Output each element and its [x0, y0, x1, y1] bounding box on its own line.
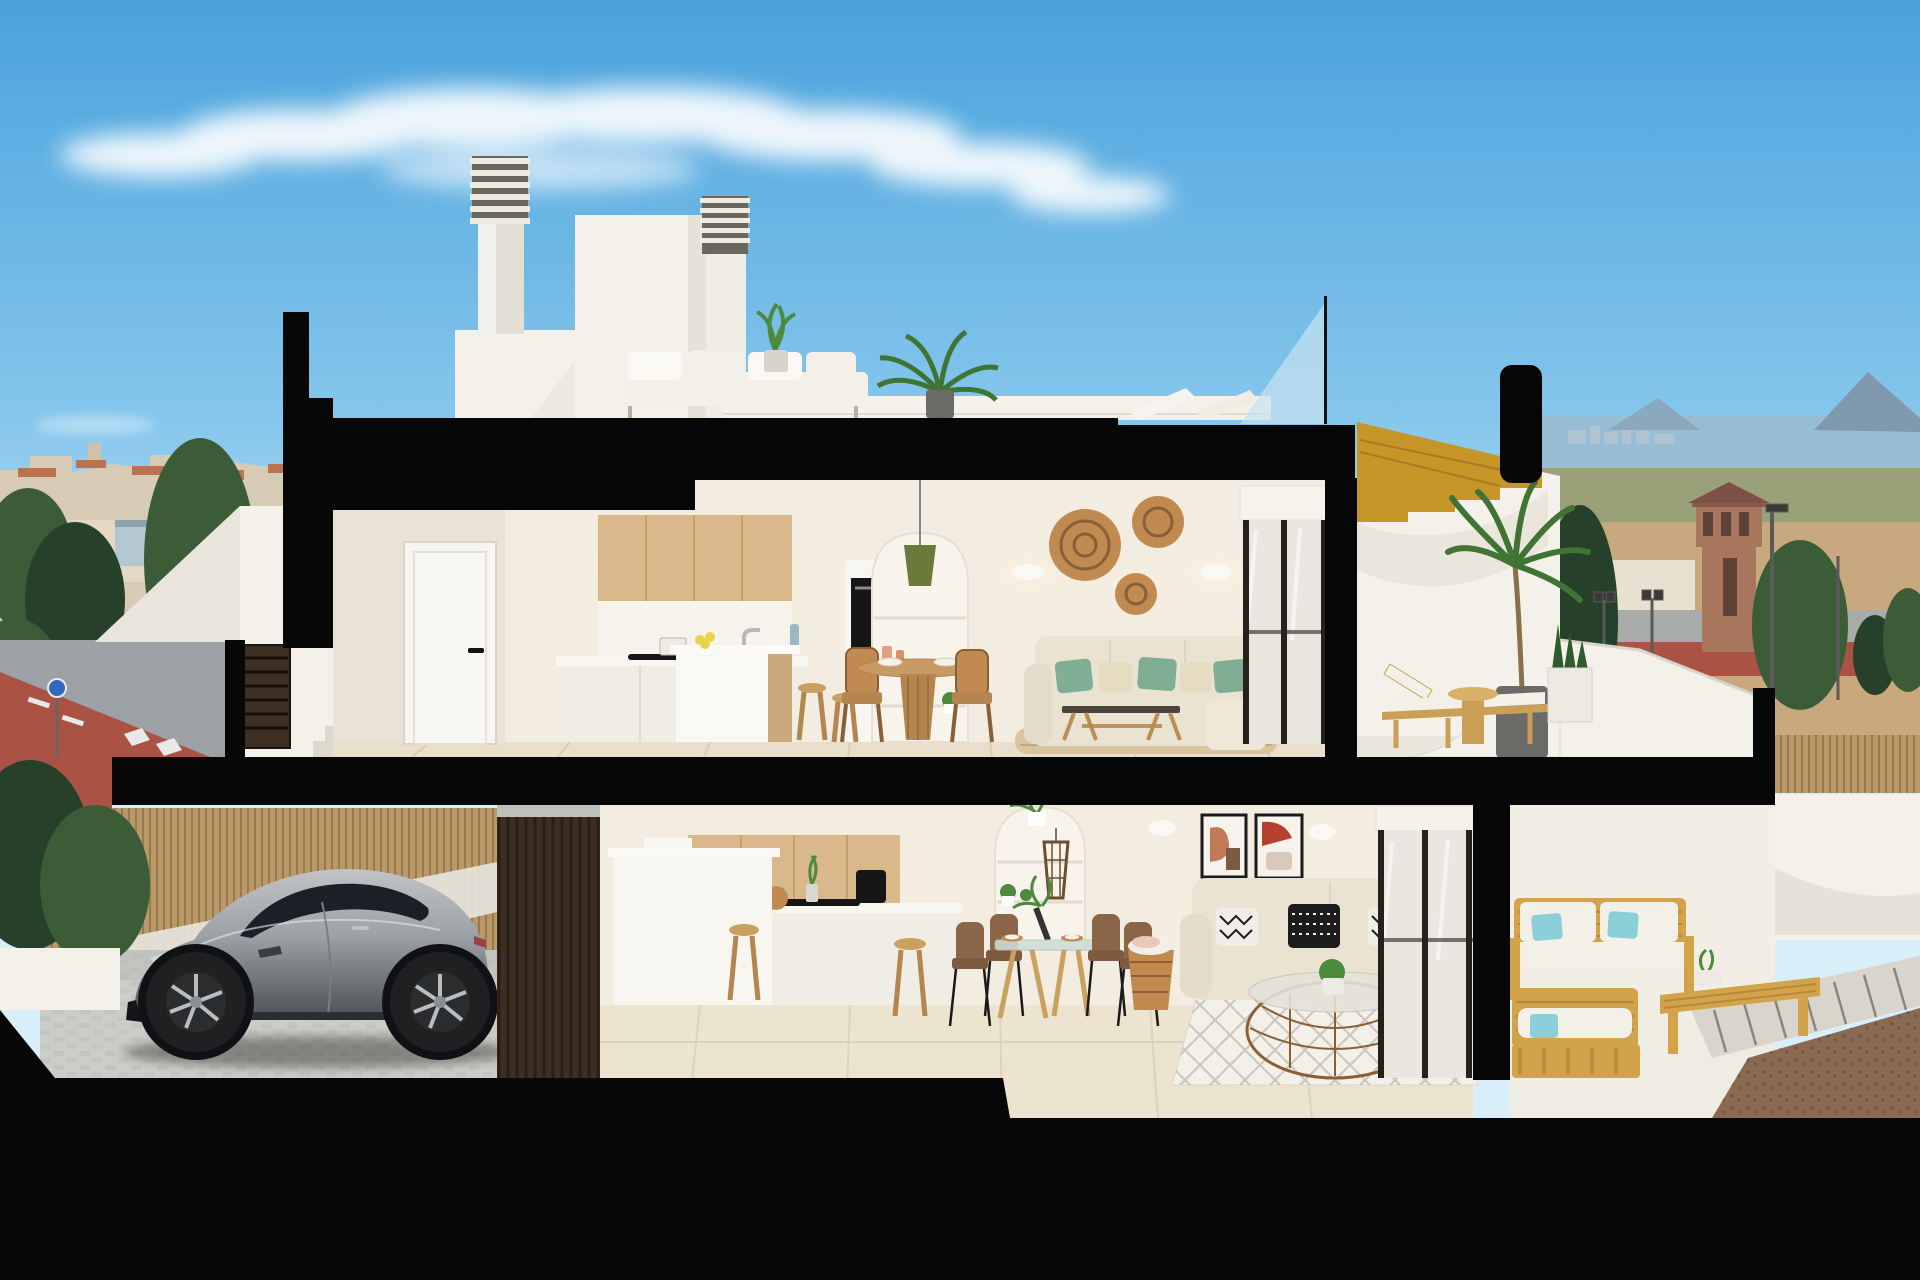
vase — [806, 884, 818, 902]
chair-back — [956, 922, 984, 964]
lamp-head — [1654, 590, 1663, 600]
door-frame-bar — [1378, 830, 1384, 1078]
louver-core — [702, 196, 748, 254]
sofa-base — [1512, 1044, 1640, 1078]
bw-pillow — [1216, 908, 1258, 946]
slat — [470, 170, 530, 176]
palm-pot — [926, 390, 954, 418]
niche-plant — [1020, 889, 1032, 901]
slat — [470, 194, 530, 200]
louver-core — [472, 156, 528, 224]
hub — [190, 996, 202, 1008]
sconce — [1148, 820, 1176, 836]
traffic-sign — [48, 679, 66, 697]
under-cabinet-light — [598, 601, 792, 605]
sconce — [1012, 564, 1044, 580]
skyline-building — [1604, 432, 1618, 444]
slat — [470, 206, 530, 212]
door-rail — [1378, 938, 1474, 942]
skyline-building — [1568, 430, 1586, 444]
cross-section-illustration — [0, 0, 1920, 1280]
table-pedestal — [1462, 696, 1484, 744]
skyline-building — [1654, 434, 1674, 444]
slat — [470, 158, 530, 164]
slat — [470, 218, 530, 224]
cut-entry-edge — [225, 640, 245, 757]
slat — [700, 228, 750, 233]
basket — [1128, 950, 1174, 1010]
louvered-gate — [243, 645, 290, 748]
seat-cushion — [1512, 942, 1690, 964]
small-cloud — [35, 415, 155, 435]
rear-wheel — [390, 952, 490, 1052]
skyline-building — [1636, 431, 1649, 444]
upper-hall-door — [404, 542, 496, 744]
lower-level — [0, 760, 1920, 1118]
table-top — [1448, 687, 1498, 701]
chair-seat — [842, 692, 882, 704]
plate — [1065, 935, 1079, 940]
chimney-louver-cap — [470, 156, 530, 224]
abstract-shape — [1226, 848, 1240, 870]
coffee-machine — [856, 870, 886, 903]
balustrade-post — [1324, 296, 1327, 424]
roller-blind-box — [1376, 806, 1476, 832]
slat — [700, 238, 750, 243]
tower-arch — [1721, 512, 1731, 536]
cut-ceiling-band — [695, 425, 1355, 480]
roof — [76, 460, 106, 468]
cut-parapet-edge — [1753, 688, 1775, 758]
chair-back — [956, 650, 988, 696]
cut-stair-edge — [1500, 365, 1542, 483]
green-pendant-lamp — [904, 545, 936, 586]
hub — [434, 996, 446, 1008]
sofa-arm — [1180, 914, 1212, 998]
lamp-head — [1594, 592, 1603, 602]
cut-mid-slab — [112, 757, 1775, 805]
plant-pot — [1002, 896, 1014, 906]
cut-bulkhead — [333, 418, 695, 510]
sofa-leg — [1684, 936, 1694, 1000]
bench-planter — [1694, 970, 1722, 986]
tower-arch — [1739, 512, 1749, 536]
teal-pillow — [1531, 913, 1563, 942]
roof — [18, 468, 56, 477]
table-glass-top — [1062, 706, 1180, 713]
skyline-building — [1622, 428, 1631, 444]
door-handle — [468, 648, 484, 653]
chair-back — [1092, 914, 1120, 956]
slat — [470, 182, 530, 188]
back-cushion — [806, 352, 856, 380]
cloud-puff — [1010, 177, 1170, 213]
chimney-shaft-shade — [496, 222, 524, 334]
plant-pot — [1322, 978, 1344, 995]
cream-pillow — [1098, 662, 1132, 692]
upper-living-sofa — [1015, 636, 1277, 754]
chair-seat — [952, 692, 992, 704]
cut-left-column — [283, 398, 333, 648]
chair-seat — [952, 958, 988, 969]
plate — [1005, 935, 1019, 940]
black-pillow — [1288, 904, 1340, 948]
basket-side-table — [1128, 936, 1174, 1010]
door-frame-bar — [1466, 830, 1472, 1078]
lower-interior — [600, 786, 1478, 1118]
cut-column-cap — [283, 312, 309, 404]
skyline-building — [1590, 426, 1600, 444]
stool-seat — [894, 938, 926, 950]
sliding-glass-door-upper — [1240, 486, 1330, 744]
bench-leg — [1668, 1012, 1678, 1054]
door-handle — [352, 926, 369, 930]
sconce — [1200, 564, 1232, 580]
wicker-disc — [1115, 573, 1157, 615]
cloud-puff — [380, 150, 700, 190]
island-wood-side — [768, 652, 792, 742]
vase — [790, 624, 799, 648]
render-canvas — [0, 0, 1920, 1280]
wicker-disc — [1132, 496, 1184, 548]
sconce — [1308, 824, 1336, 840]
chimney-louver-cap-2 — [700, 196, 750, 254]
slat — [700, 218, 750, 223]
pole-head — [1766, 504, 1788, 512]
tower-arch — [1703, 512, 1713, 536]
back-cushion — [628, 352, 682, 380]
table-shelf — [1082, 724, 1162, 728]
bush — [40, 805, 150, 965]
teal-pillow — [1607, 911, 1639, 939]
plant-pot — [764, 350, 788, 372]
door-frame-bar — [1422, 830, 1428, 1078]
island-front — [676, 652, 768, 742]
cream-pillow — [1180, 662, 1212, 692]
slat-texture — [497, 817, 600, 1078]
lemon — [700, 639, 710, 649]
bench-leg — [1798, 994, 1808, 1036]
tower-window — [1723, 558, 1737, 616]
plant-pot — [1028, 812, 1046, 826]
sofa-arm — [1024, 664, 1052, 744]
folded-throw — [1132, 936, 1160, 948]
white-planter — [1548, 668, 1592, 722]
peninsula-top — [608, 848, 780, 857]
roller-blind-box — [1240, 486, 1330, 520]
upper-floor-interior — [333, 478, 1333, 757]
cut-right-column — [1325, 478, 1357, 760]
outdoor-sofa-side — [1512, 988, 1640, 1078]
slat — [700, 208, 750, 213]
sliding-glass-door-lower — [1376, 806, 1476, 1078]
abstract-shape — [1266, 852, 1292, 870]
cypress — [1752, 540, 1848, 710]
low-white-wall — [0, 948, 120, 1010]
plate — [934, 658, 958, 666]
front-wheel — [146, 952, 246, 1052]
teal-pillow — [1530, 1014, 1558, 1038]
chair-seat — [1088, 950, 1124, 961]
stool-seat — [798, 683, 826, 693]
door-rail — [1243, 630, 1327, 634]
glass-table-top — [995, 940, 1099, 950]
plate — [878, 658, 902, 666]
bamboo-texture — [1775, 735, 1920, 793]
chair-seat — [986, 950, 1022, 961]
green-pillow — [1137, 657, 1177, 692]
lamp-head — [1606, 592, 1615, 602]
back-cushion — [688, 350, 742, 380]
cut-lower-divider — [1473, 805, 1510, 1080]
lamp-head — [1642, 590, 1651, 600]
slat — [700, 198, 750, 203]
island-top — [670, 645, 800, 654]
green-pillow — [1054, 658, 1093, 694]
stool-seat — [729, 924, 759, 936]
